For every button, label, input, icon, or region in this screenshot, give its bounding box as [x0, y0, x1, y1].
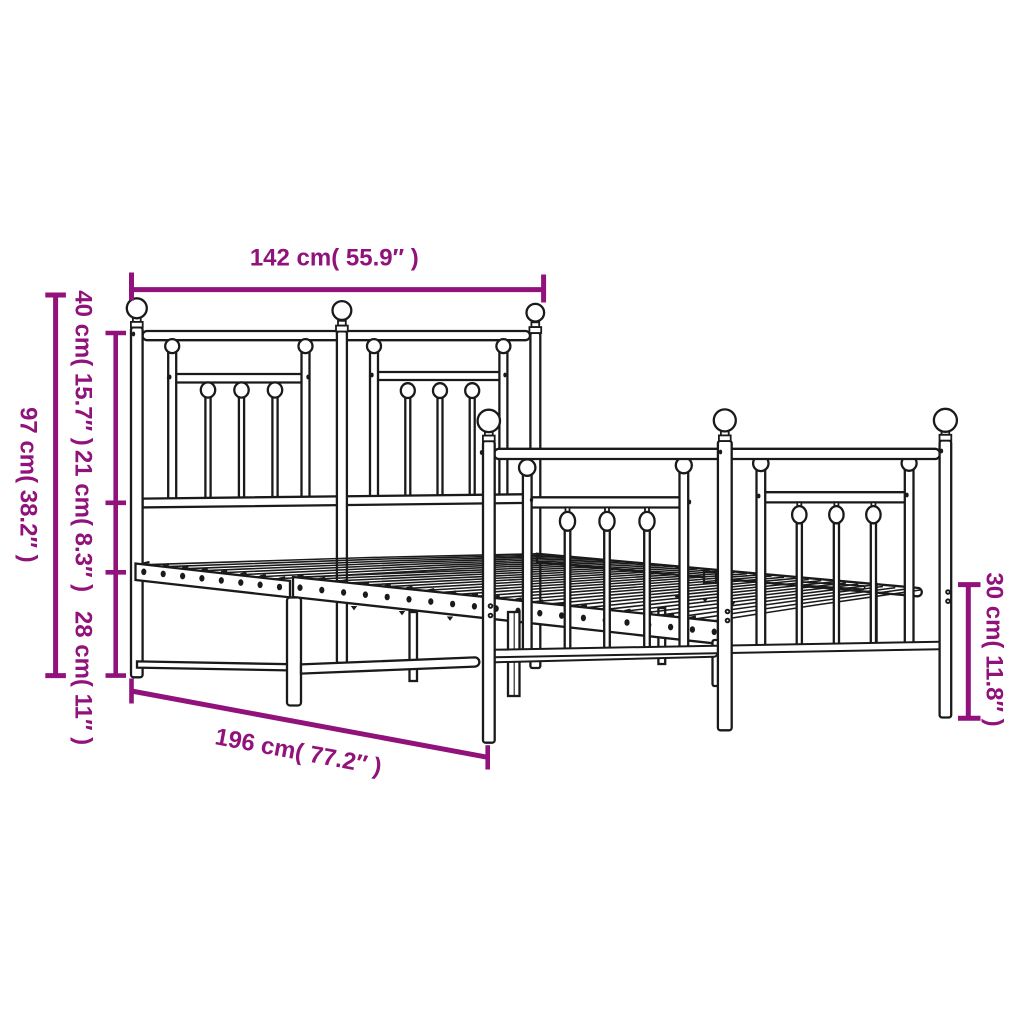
svg-text:21 cm( 8.3″ ): 21 cm( 8.3″ ) [70, 450, 97, 592]
svg-text:30 cm( 11.8″ ): 30 cm( 11.8″ ) [981, 572, 1008, 726]
svg-text:97 cm( 38.2″ ): 97 cm( 38.2″ ) [15, 407, 42, 563]
svg-text:142 cm( 55.9″ ): 142 cm( 55.9″ ) [250, 244, 419, 271]
svg-text:28 cm( 11″ ): 28 cm( 11″ ) [70, 611, 97, 745]
svg-text:40 cm( 15.7″ ): 40 cm( 15.7″ ) [70, 290, 97, 446]
